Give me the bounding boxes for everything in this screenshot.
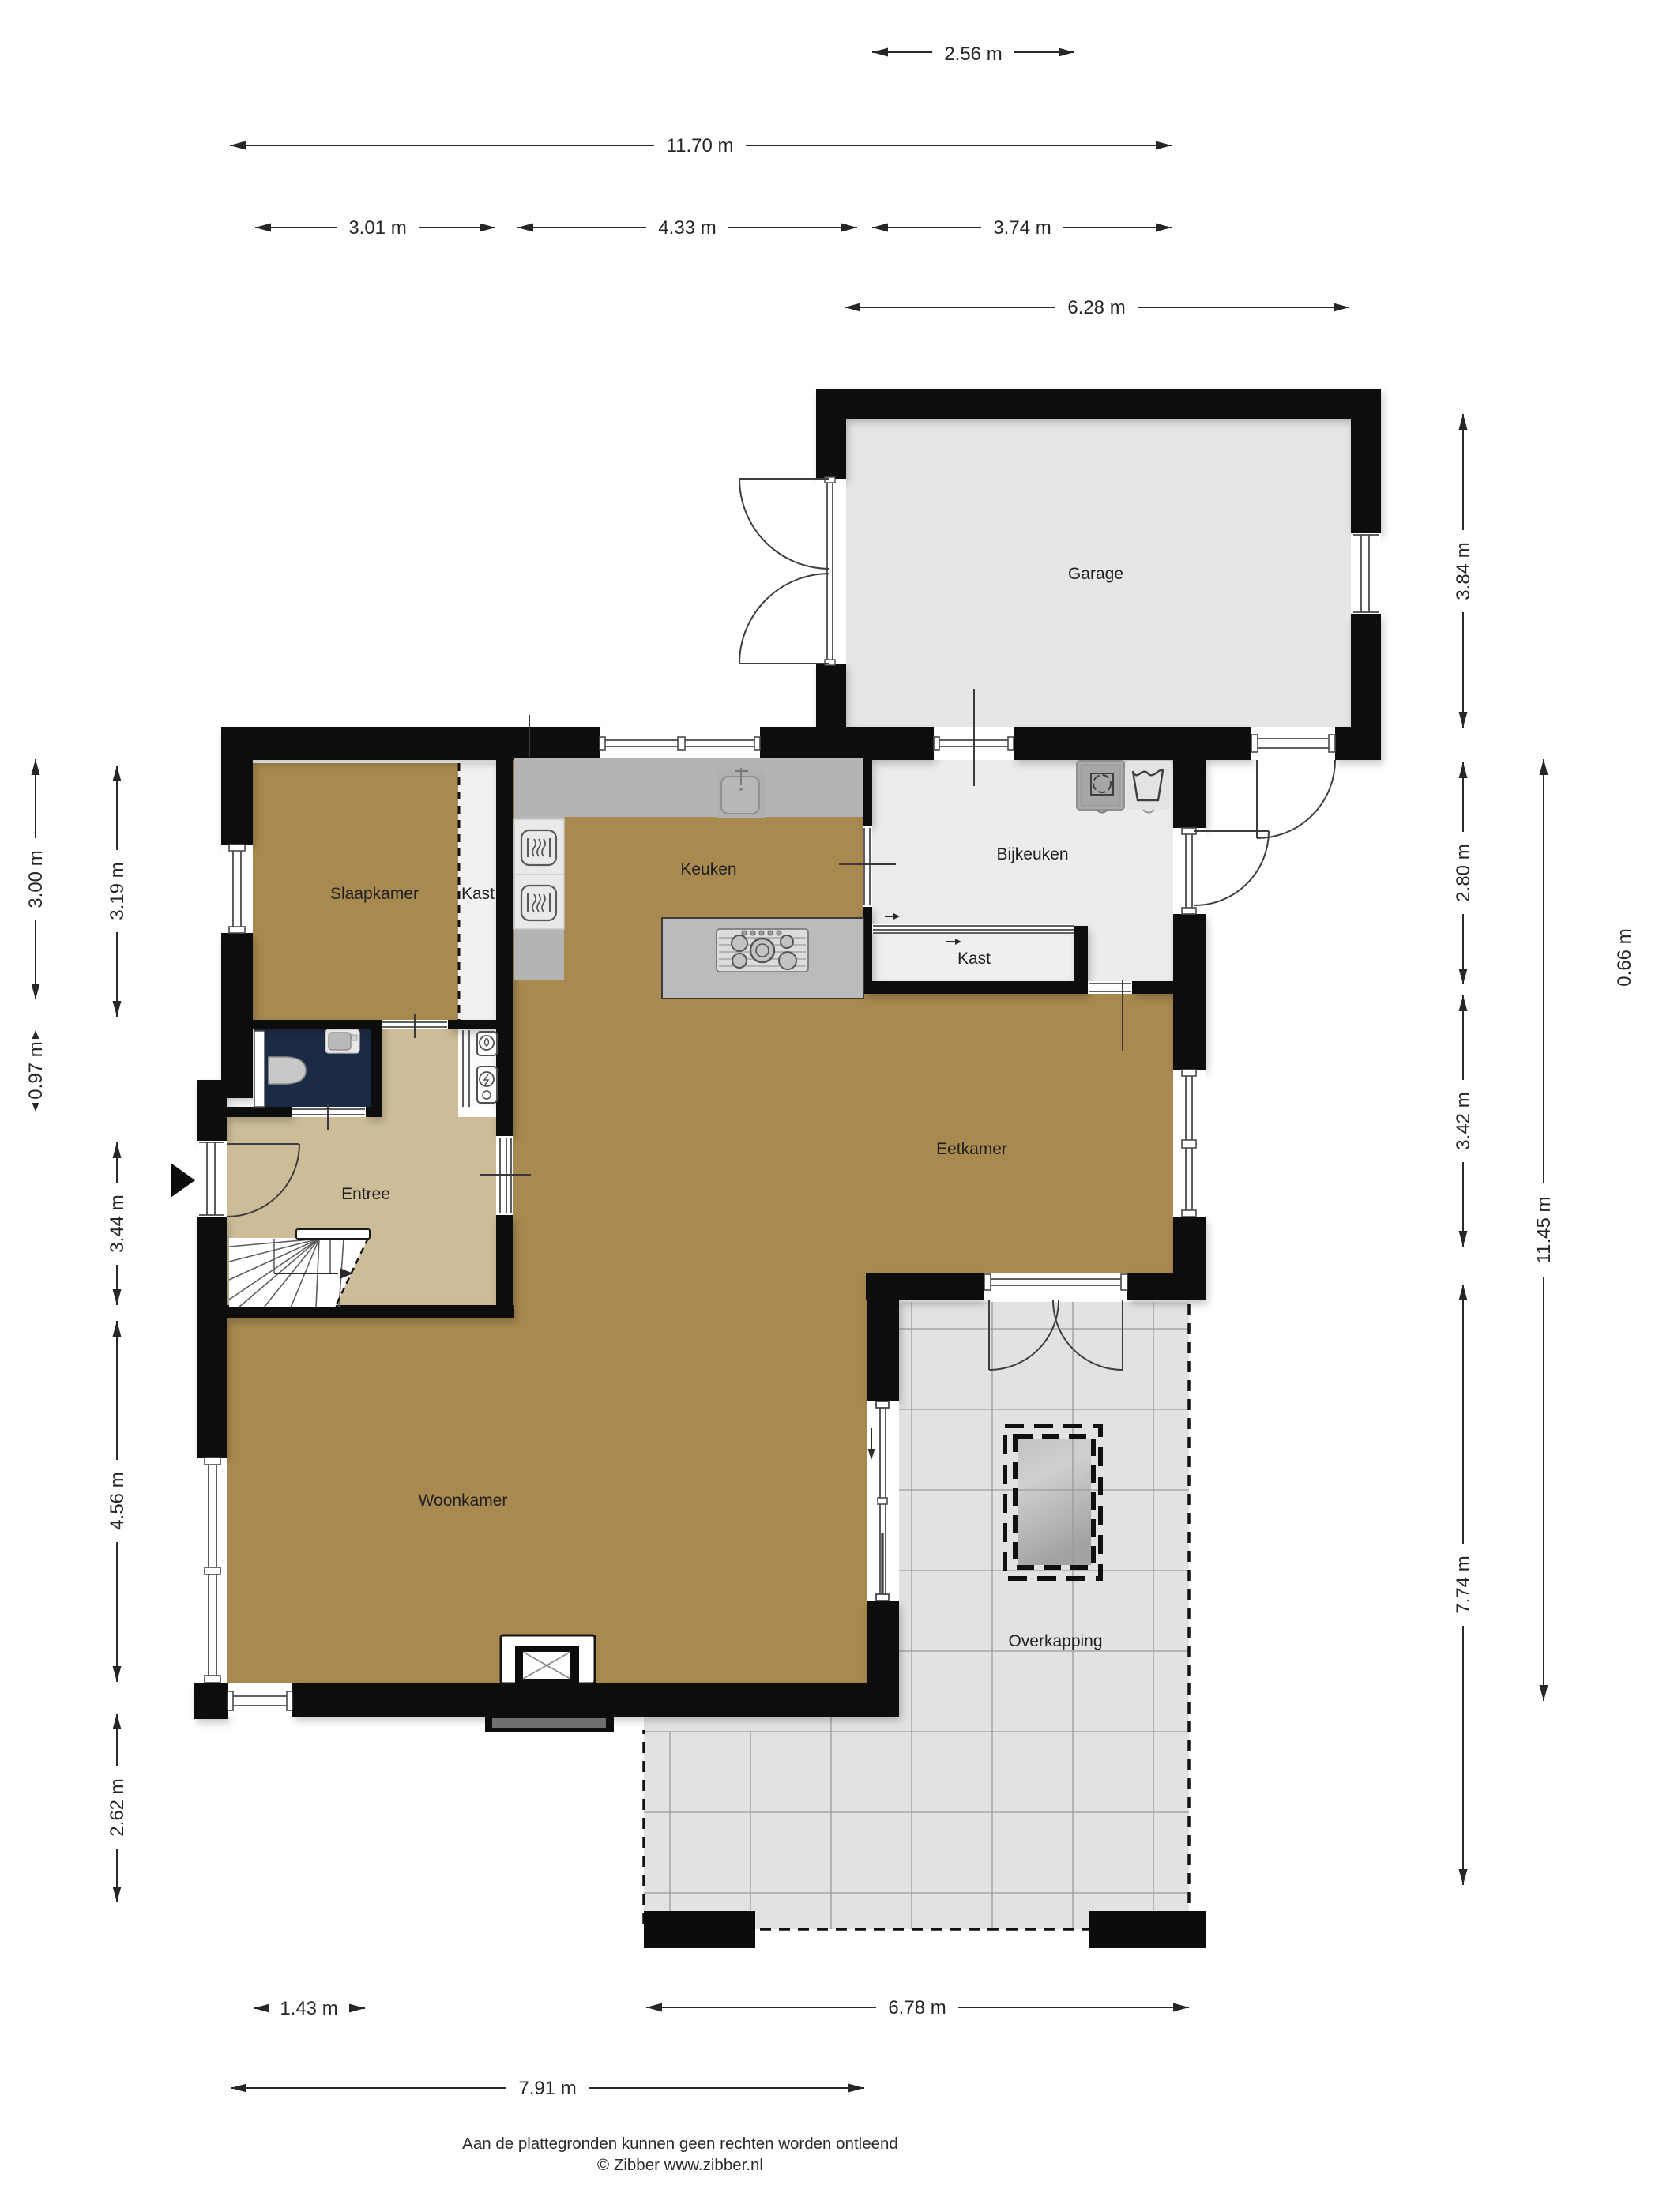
svg-text:© Zibber www.zibber.nl: © Zibber www.zibber.nl xyxy=(597,2156,763,2174)
svg-text:Bijkeuken: Bijkeuken xyxy=(996,845,1068,863)
svg-text:2.62 m: 2.62 m xyxy=(107,1778,128,1836)
svg-text:Garage: Garage xyxy=(1068,565,1123,583)
svg-text:4.33 m: 4.33 m xyxy=(658,217,716,239)
svg-text:Woonkamer: Woonkamer xyxy=(419,1492,508,1510)
svg-text:Keuken: Keuken xyxy=(680,860,736,878)
svg-text:11.70 m: 11.70 m xyxy=(667,135,734,156)
svg-text:Kast: Kast xyxy=(957,950,991,968)
svg-text:3.00 m: 3.00 m xyxy=(25,850,47,908)
svg-text:3.74 m: 3.74 m xyxy=(993,217,1051,239)
svg-text:4.56 m: 4.56 m xyxy=(107,1472,128,1529)
svg-text:3.01 m: 3.01 m xyxy=(348,217,406,239)
svg-text:Overkapping: Overkapping xyxy=(1008,1632,1102,1650)
svg-text:7.91 m: 7.91 m xyxy=(518,2078,576,2099)
svg-text:3.44 m: 3.44 m xyxy=(107,1194,128,1252)
svg-text:3.19 m: 3.19 m xyxy=(107,862,128,920)
svg-text:0.97 m: 0.97 m xyxy=(25,1041,47,1099)
svg-text:6.28 m: 6.28 m xyxy=(1067,297,1125,318)
svg-text:11.45 m: 11.45 m xyxy=(1533,1197,1555,1264)
svg-text:2.80 m: 2.80 m xyxy=(1453,844,1474,901)
svg-text:Entree: Entree xyxy=(341,1185,390,1203)
svg-text:2.56 m: 2.56 m xyxy=(944,43,1002,65)
svg-text:3.84 m: 3.84 m xyxy=(1453,542,1474,600)
svg-text:Eetkamer: Eetkamer xyxy=(936,1140,1007,1158)
svg-text:Aan de plattegronden kunnen ge: Aan de plattegronden kunnen geen rechten… xyxy=(462,2135,898,2153)
svg-text:Slaapkamer: Slaapkamer xyxy=(330,885,419,903)
svg-text:3.42 m: 3.42 m xyxy=(1453,1092,1474,1149)
svg-text:7.74 m: 7.74 m xyxy=(1453,1556,1474,1613)
svg-text:1.43 m: 1.43 m xyxy=(280,1998,337,2019)
svg-text:Kast: Kast xyxy=(461,885,495,903)
svg-text:0.66 m: 0.66 m xyxy=(1614,928,1635,986)
svg-text:6.78 m: 6.78 m xyxy=(888,1997,946,2018)
